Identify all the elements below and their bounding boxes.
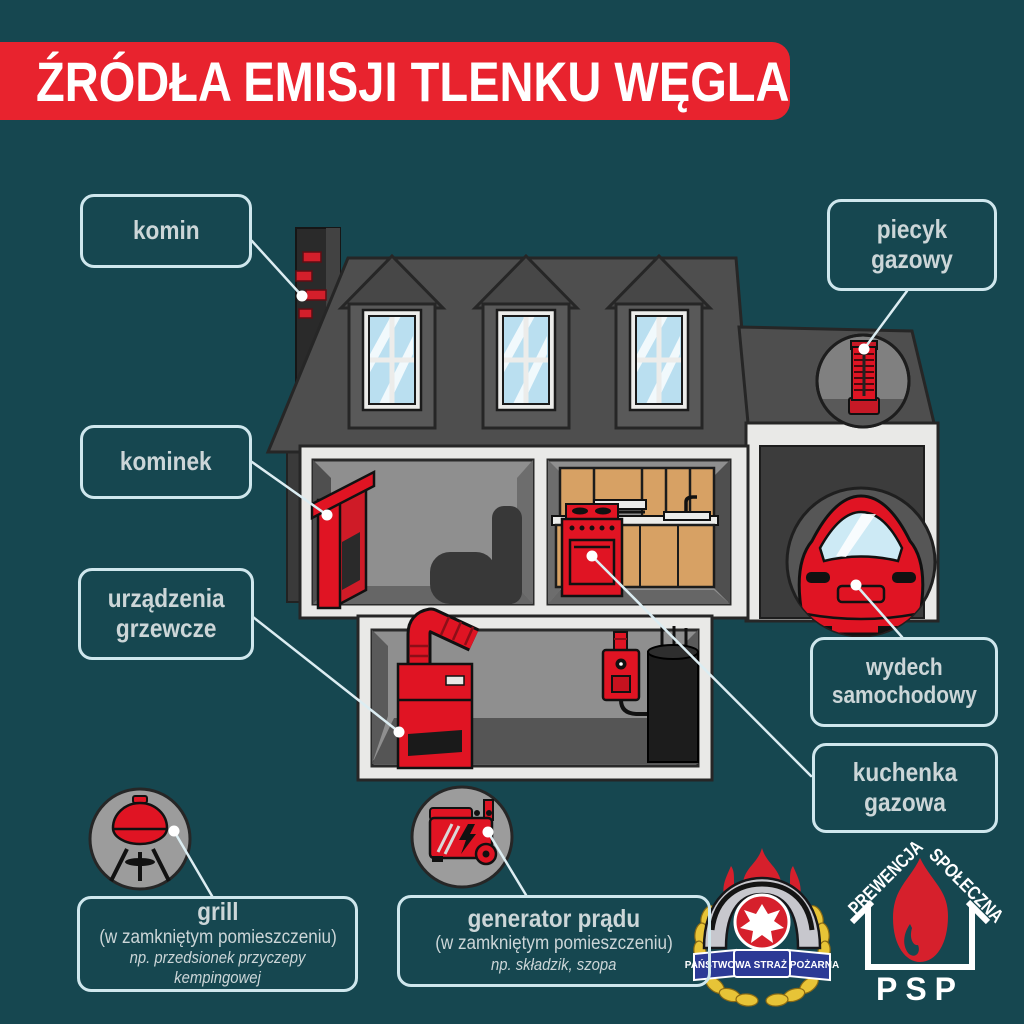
chimney-lower — [287, 440, 300, 602]
page-title: ŹRÓDŁA EMISJI TLENKU WĘGLA — [36, 49, 789, 114]
leader-dot — [483, 827, 494, 838]
callout-wydech-samochodowy: wydech samochodowy — [810, 637, 998, 727]
leader-dot — [322, 510, 333, 521]
leader-dot — [297, 291, 308, 302]
callout-urzadzenia-grzewcze: urządzenia grzewcze — [78, 568, 254, 660]
ground-floor — [300, 446, 748, 618]
infobox-grill: grill (w zamkniętym pomieszczeniu) np. p… — [77, 896, 358, 992]
furnace — [398, 664, 472, 768]
living-room — [312, 460, 533, 608]
kitchen — [548, 460, 730, 604]
infographic: PAŃSTWOWA STRAŻ POŻARNA PREWENCJA SPOŁEC… — [0, 0, 1024, 1024]
leader-dot — [859, 344, 870, 355]
callout-piecyk-gazowy: piecyk gazowy — [827, 199, 997, 291]
leader-line — [252, 241, 302, 296]
garage — [746, 423, 938, 644]
basement — [358, 616, 712, 780]
leader-dot — [587, 551, 598, 562]
title-banner: ŹRÓDŁA EMISJI TLENKU WĘGLA — [0, 42, 790, 120]
sink — [664, 512, 710, 520]
leader-dot — [394, 727, 405, 738]
leader-dot — [169, 826, 180, 837]
infobox-generator: generator prądu (w zamkniętym pomieszcze… — [397, 895, 711, 987]
generator-icon — [412, 787, 512, 887]
prewencja-abbr: PSP — [876, 971, 964, 1007]
callout-kominek: kominek — [80, 425, 252, 499]
house-illustration: PAŃSTWOWA STRAŻ POŻARNA PREWENCJA SPOŁEC… — [0, 0, 1024, 1024]
water-heater-tank — [648, 626, 698, 762]
gas-stove — [562, 504, 622, 596]
callout-kuchenka-gazowa: kuchenka gazowa — [812, 743, 998, 833]
leader-dot — [851, 580, 862, 591]
grill-icon — [90, 789, 190, 889]
callout-komin: komin — [80, 194, 252, 268]
prewencja-spoleczna-logo: PREWENCJA SPOŁECZNA PSP — [845, 837, 1008, 1007]
